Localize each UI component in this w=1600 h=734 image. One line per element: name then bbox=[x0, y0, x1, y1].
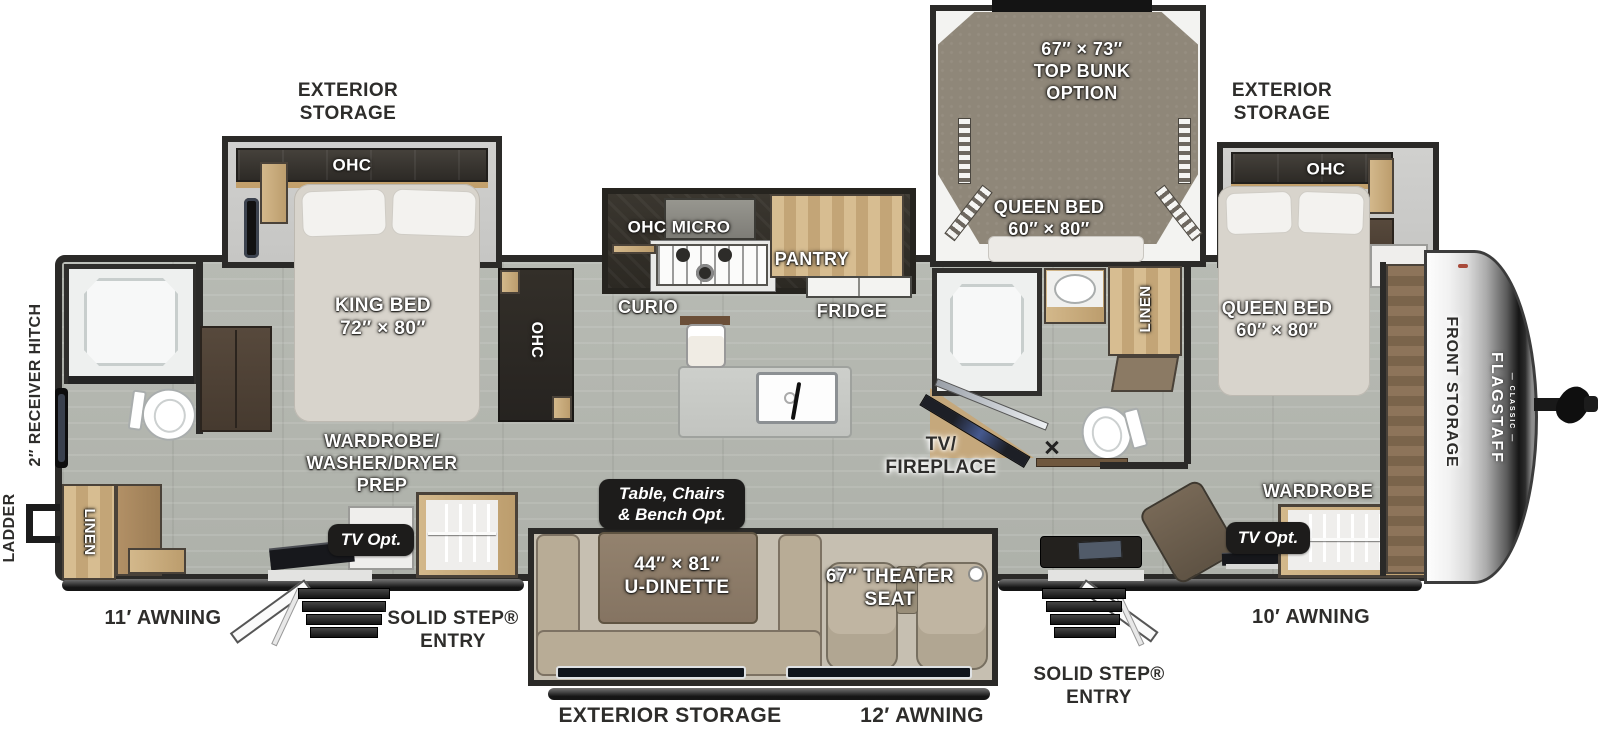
brand-series: — CLASSIC — bbox=[1506, 352, 1515, 464]
step-tread bbox=[1050, 614, 1120, 625]
kitchen-shelf bbox=[612, 244, 656, 254]
bunk-slide-vent bbox=[992, 0, 1152, 13]
slide-window bbox=[556, 666, 746, 679]
rear-ladder-icon bbox=[26, 504, 33, 543]
tongue-jack-handle bbox=[1584, 396, 1598, 412]
range-stove bbox=[656, 244, 768, 286]
label-front-queen-bed: QUEEN BED 60″ × 80″ bbox=[1222, 298, 1333, 342]
front-queen-pillow bbox=[1297, 191, 1364, 235]
step-tread bbox=[298, 588, 390, 599]
cupholder bbox=[968, 566, 984, 582]
mid-shower-pan bbox=[950, 284, 1024, 366]
label-front-storage: FRONT STORAGE bbox=[1441, 316, 1461, 467]
label-receiver-hitch: 2″ RECEIVER HITCH bbox=[26, 304, 46, 467]
label-rear-ohc-side: OHC bbox=[526, 322, 546, 359]
bunk-ladder bbox=[1178, 118, 1191, 184]
mid-bath-wall bbox=[1100, 462, 1188, 469]
label-theater-seat: 67″ THEATER SEAT bbox=[826, 565, 954, 611]
step-stool bbox=[128, 548, 186, 574]
label-king-ohc: OHC bbox=[333, 156, 372, 177]
mid-sink bbox=[1054, 274, 1096, 304]
label-bunk-linen: LINEN bbox=[1137, 286, 1155, 333]
label-rear-linen: LINEN bbox=[80, 509, 98, 556]
stove-burner bbox=[718, 248, 732, 262]
label-exterior-storage-top-right: EXTERIOR STORAGE bbox=[1232, 79, 1332, 125]
rear-ohc-shelf bbox=[552, 396, 572, 420]
rear-dresser-split bbox=[235, 330, 237, 428]
step-tread bbox=[1042, 588, 1126, 599]
step-tread bbox=[310, 627, 378, 638]
floorplan-canvas: EXTERIOR STORAGE EXTERIOR STORAGE 67″ × … bbox=[0, 0, 1600, 734]
label-entry-front: SOLID STEP® ENTRY bbox=[1033, 663, 1164, 709]
stove-burner bbox=[676, 248, 690, 262]
front-nightstand bbox=[1368, 158, 1394, 214]
king-bed-pillow bbox=[391, 189, 477, 238]
rear-toilet bbox=[126, 382, 201, 447]
label-king-bed: KING BED 72″ × 80″ bbox=[335, 294, 431, 340]
front-door-threshold bbox=[1048, 570, 1144, 581]
front-queen-pillow bbox=[1225, 191, 1292, 235]
awning-tube-center bbox=[548, 688, 990, 700]
rear-wardrobe-rod bbox=[428, 532, 496, 535]
label-front-wardrobe: WARDROBE bbox=[1263, 481, 1373, 503]
label-top-bunk-option: 67″ × 73″ TOP BUNK OPTION bbox=[1034, 39, 1131, 105]
step-tread bbox=[1054, 627, 1116, 638]
front-storage-floor bbox=[1386, 264, 1426, 574]
rear-shower-pan bbox=[84, 278, 178, 366]
brand-logo: — CLASSIC — FLAGSTAFF bbox=[1487, 352, 1515, 464]
label-ohc-micro: OHC MICRO bbox=[628, 218, 731, 239]
step-tread bbox=[306, 614, 382, 625]
trash-can bbox=[686, 324, 726, 368]
laptop bbox=[1078, 540, 1123, 560]
cap-marker-light bbox=[1458, 264, 1468, 268]
label-fridge: FRIDGE bbox=[817, 301, 887, 323]
label-wardrobe-prep: WARDROBE/ WASHER/DRYER PREP bbox=[306, 431, 457, 497]
label-awning-front: 10′ AWNING bbox=[1252, 605, 1370, 629]
label-awning-center: 12′ AWNING bbox=[860, 703, 984, 729]
king-nightstand bbox=[260, 162, 288, 224]
bedroom-divider-wall bbox=[1184, 264, 1191, 464]
rear-window-glass bbox=[58, 394, 65, 462]
slide-window bbox=[786, 666, 972, 679]
label-pantry: PANTRY bbox=[775, 249, 849, 271]
label-tv-fireplace: TV/ FIREPLACE bbox=[885, 433, 996, 479]
badge-tv-opt-rear: TV Opt. bbox=[328, 524, 414, 556]
rear-shower-ledge bbox=[68, 376, 194, 384]
rear-ohc-shelf bbox=[500, 270, 520, 294]
bunk-linen-base bbox=[1111, 356, 1179, 392]
label-front-ohc: OHC bbox=[1307, 160, 1346, 181]
step-tread bbox=[302, 601, 386, 612]
brand-name: FLAGSTAFF bbox=[1487, 352, 1507, 464]
label-awning-rear: 11′ AWNING bbox=[105, 606, 222, 630]
step-tread bbox=[1046, 601, 1122, 612]
label-curio: CURIO bbox=[618, 297, 678, 319]
rear-door-threshold bbox=[268, 570, 372, 581]
king-slide-window bbox=[244, 198, 259, 258]
label-ladder: LADDER bbox=[0, 493, 20, 562]
stove-burner bbox=[696, 264, 714, 282]
king-bed-pillow bbox=[301, 189, 387, 238]
bunk-ladder bbox=[958, 118, 971, 184]
label-bunk-queen-bed: QUEEN BED 60″ × 80″ bbox=[994, 197, 1105, 241]
refrigerator-door-split bbox=[858, 278, 860, 296]
label-u-dinette: 44″ × 81″ U-DINETTE bbox=[625, 553, 730, 599]
badge-tv-opt-front: TV Opt. bbox=[1226, 522, 1310, 554]
label-exterior-storage-bottom: EXTERIOR STORAGE bbox=[558, 703, 781, 729]
label-exterior-storage-top-left: EXTERIOR STORAGE bbox=[298, 79, 398, 125]
label-entry-rear: SOLID STEP® ENTRY bbox=[387, 607, 518, 653]
badge-dinette-option: Table, Chairs & Bench Opt. bbox=[599, 479, 745, 529]
